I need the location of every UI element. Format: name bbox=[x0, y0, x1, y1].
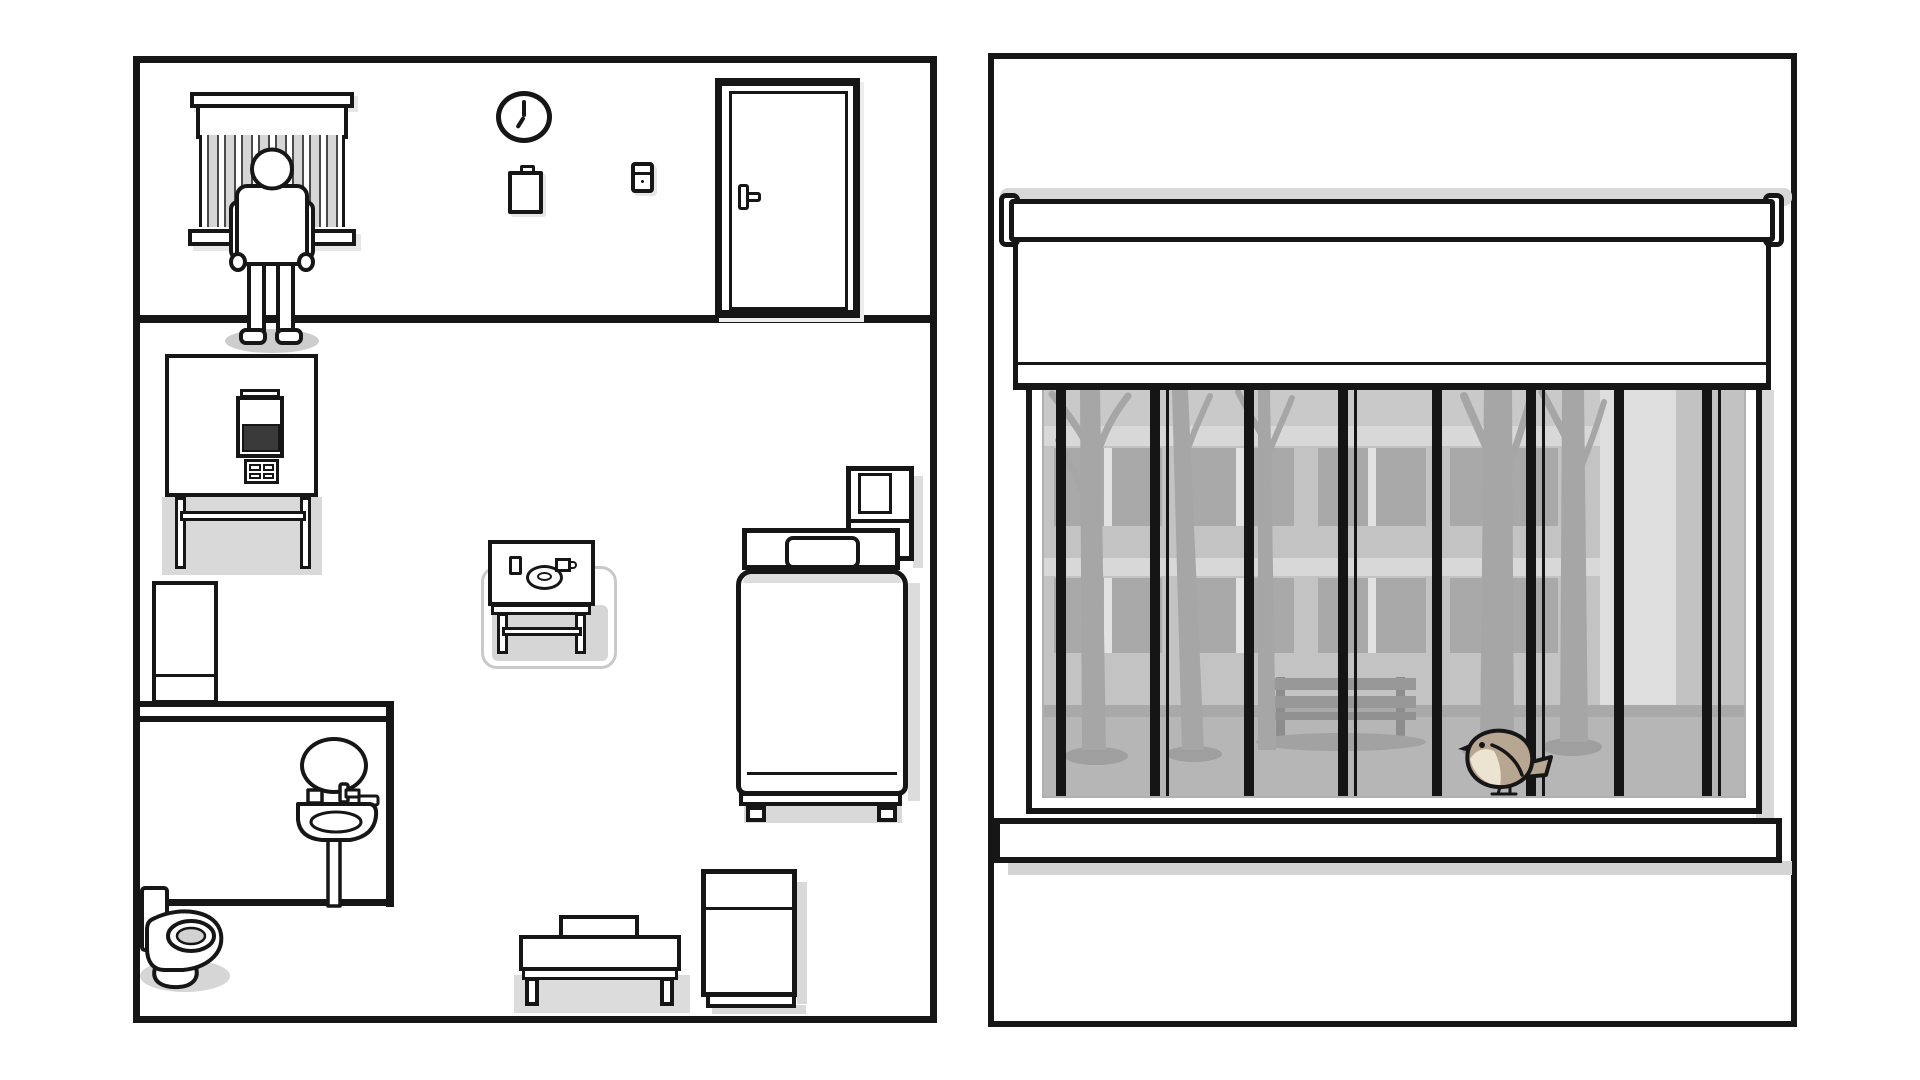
light-switch[interactable] bbox=[631, 162, 654, 193]
window-glass[interactable] bbox=[1044, 390, 1744, 796]
sill-shadow bbox=[1008, 861, 1792, 875]
window-bar bbox=[1432, 390, 1442, 796]
bird-eye bbox=[1479, 742, 1485, 748]
bench-box[interactable] bbox=[519, 915, 684, 1010]
toilet[interactable] bbox=[125, 878, 245, 1000]
patient-figure bbox=[218, 140, 328, 362]
nightstand-divider bbox=[706, 907, 792, 910]
bed[interactable] bbox=[736, 528, 926, 828]
meal-table-crossbar bbox=[502, 627, 582, 636]
bed-mattress[interactable] bbox=[736, 569, 908, 796]
bird-beak bbox=[1458, 744, 1470, 752]
locker-bottom-section bbox=[156, 674, 214, 700]
window-bar-thin bbox=[1718, 390, 1721, 796]
nightstand-shadow-side bbox=[797, 882, 807, 1004]
clock-minute-hand bbox=[522, 100, 526, 117]
bed-side-shadow bbox=[908, 583, 920, 801]
wall-clock[interactable] bbox=[496, 91, 552, 143]
mattress-top-shade bbox=[743, 574, 901, 583]
window-bar bbox=[1244, 390, 1254, 796]
bathroom-wall-vertical bbox=[386, 701, 394, 907]
machine-button[interactable] bbox=[249, 464, 261, 471]
nightstand[interactable] bbox=[701, 869, 798, 1009]
machine-buttons[interactable] bbox=[244, 459, 279, 484]
bed-pillow[interactable] bbox=[785, 536, 860, 569]
window-bar-thin bbox=[1166, 390, 1169, 796]
clipboard-board bbox=[508, 171, 543, 214]
outside-scene bbox=[1044, 390, 1744, 796]
machine-table-leg-right bbox=[300, 497, 311, 569]
tv-screen[interactable] bbox=[858, 473, 892, 514]
patient-shadow bbox=[225, 329, 319, 353]
machine-button[interactable] bbox=[263, 464, 275, 471]
window-bar bbox=[1338, 390, 1348, 796]
window-bar bbox=[1056, 390, 1066, 796]
machine-button[interactable] bbox=[263, 473, 275, 480]
roller-blind[interactable] bbox=[994, 188, 1794, 394]
bathroom-sink[interactable] bbox=[290, 780, 382, 910]
bathroom-wall-horizontal bbox=[140, 701, 394, 722]
meal-table[interactable] bbox=[488, 540, 598, 655]
roller-bar[interactable] bbox=[1009, 199, 1775, 242]
glass[interactable] bbox=[509, 556, 522, 575]
bird[interactable] bbox=[1456, 725, 1558, 796]
nightstand-body[interactable] bbox=[701, 869, 797, 997]
window-bar bbox=[1614, 390, 1624, 796]
bench-top bbox=[519, 935, 681, 971]
tv-stand-divider bbox=[851, 519, 909, 523]
blind-cloth[interactable] bbox=[1013, 238, 1771, 390]
bed-footboard bbox=[739, 792, 902, 806]
window-bar-thin bbox=[1354, 390, 1357, 796]
machine-table-leg-left bbox=[175, 497, 186, 569]
light-switch-slot bbox=[635, 172, 650, 175]
clipboard[interactable] bbox=[508, 165, 544, 215]
bed-foot-left bbox=[746, 806, 766, 822]
machine-button[interactable] bbox=[249, 473, 261, 480]
window-bar bbox=[1150, 390, 1160, 796]
bed-foot-right bbox=[877, 806, 897, 822]
door-handle-lever bbox=[746, 192, 761, 202]
window-valance[interactable] bbox=[196, 104, 348, 139]
blanket-line bbox=[747, 772, 897, 775]
window-bar bbox=[1702, 390, 1712, 796]
window-sill-big bbox=[994, 818, 1782, 863]
clock-hour-hand bbox=[515, 116, 525, 129]
plate-center bbox=[537, 572, 552, 581]
food-machine-table[interactable] bbox=[160, 354, 325, 574]
bench-leg-right bbox=[660, 977, 674, 1006]
bench-front-edge bbox=[522, 968, 678, 980]
bench-leg-left bbox=[525, 977, 539, 1006]
machine-table-crossbar bbox=[180, 511, 306, 521]
blind-hem-line bbox=[1018, 362, 1766, 365]
light-switch-dot bbox=[641, 180, 644, 183]
room-door[interactable] bbox=[715, 78, 860, 318]
locker[interactable] bbox=[152, 581, 218, 704]
mug-handle bbox=[569, 561, 577, 569]
machine-screen bbox=[242, 424, 280, 452]
